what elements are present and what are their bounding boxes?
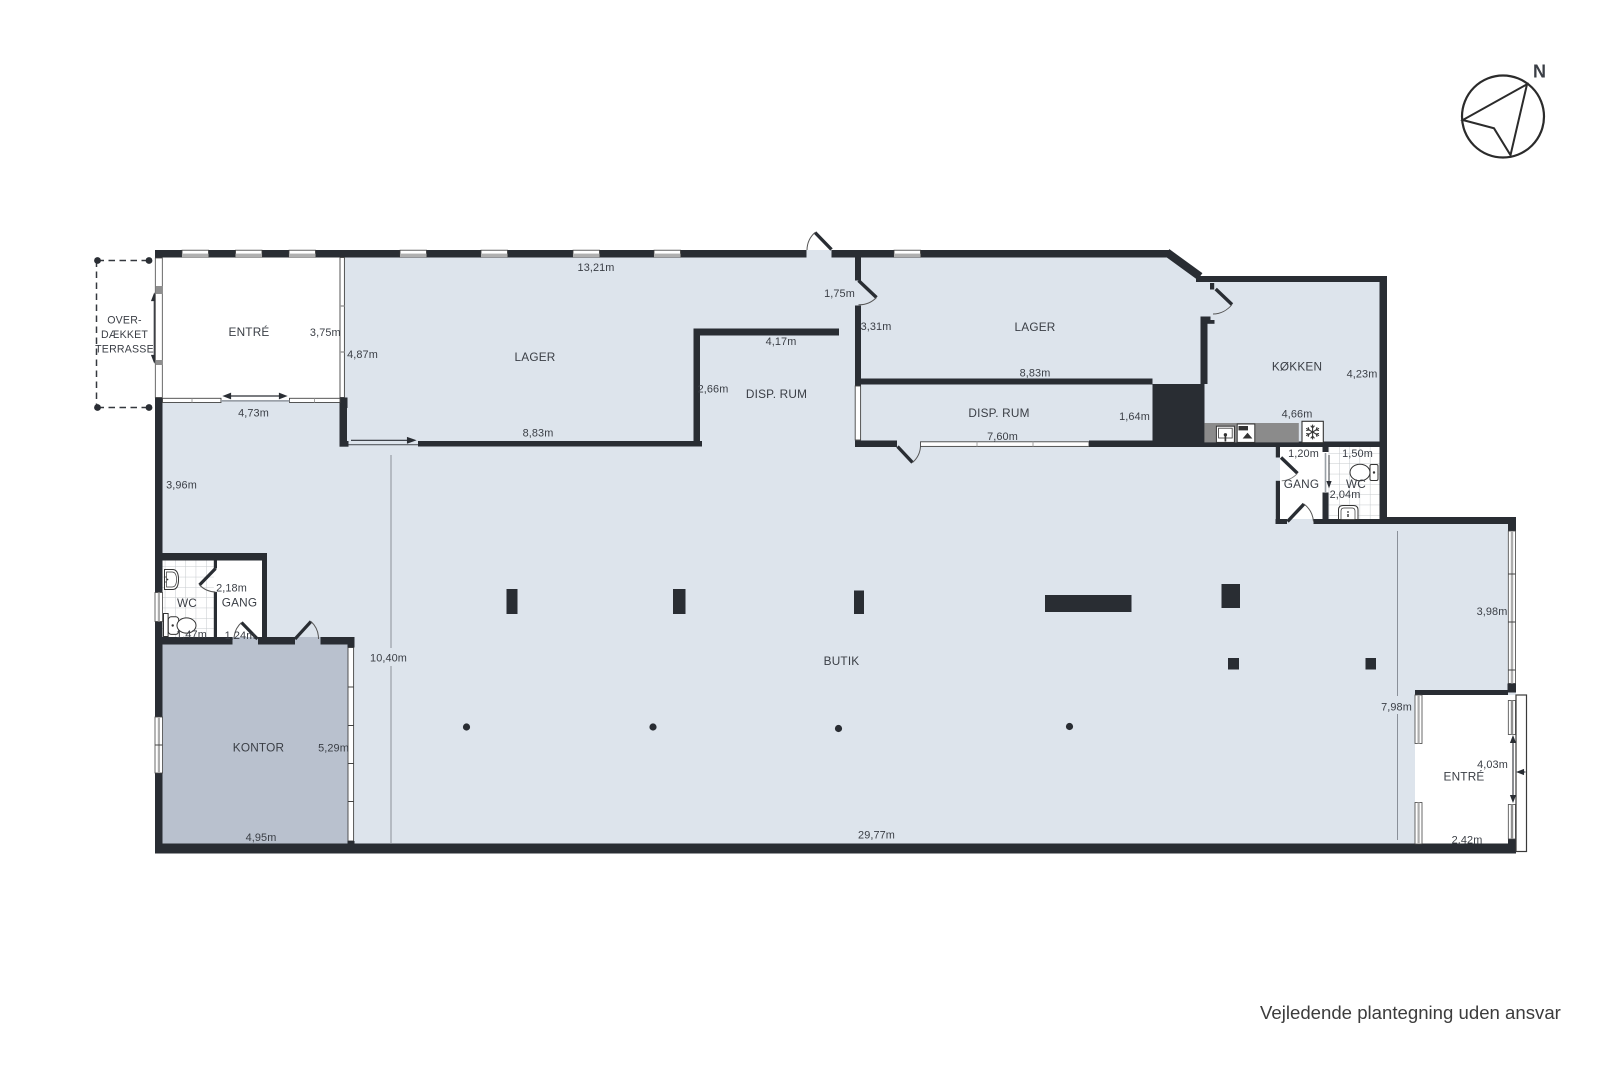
svg-text:10,40m: 10,40m [370,653,407,665]
svg-text:GANG: GANG [1284,477,1320,491]
svg-text:GANG: GANG [222,596,258,610]
svg-text:ENTRÉ: ENTRÉ [229,325,270,339]
svg-text:2,42m: 2,42m [1452,835,1483,847]
svg-text:4,73m: 4,73m [238,408,269,420]
svg-text:2,66m: 2,66m [698,384,729,396]
svg-text:29,77m: 29,77m [858,830,895,842]
svg-text:7,98m: 7,98m [1381,702,1412,714]
svg-text:1,20m: 1,20m [1288,448,1319,460]
svg-text:N: N [1533,62,1546,82]
svg-text:13,21m: 13,21m [578,262,615,274]
svg-text:ENTRÉ: ENTRÉ [1444,770,1485,784]
svg-text:TERRASSE: TERRASSE [95,344,154,356]
svg-text:KONTOR: KONTOR [233,741,284,755]
svg-text:4,23m: 4,23m [1347,369,1378,381]
svg-text:WC: WC [177,596,197,610]
svg-text:7,60m: 7,60m [987,431,1018,443]
svg-text:3,96m: 3,96m [166,480,197,492]
svg-text:4,95m: 4,95m [246,832,277,844]
svg-text:1,50m: 1,50m [1342,448,1373,460]
svg-text:3,31m: 3,31m [861,321,892,333]
svg-text:OVER-: OVER- [107,315,142,327]
svg-text:DISP. RUM: DISP. RUM [746,387,807,401]
svg-text:BUTIK: BUTIK [824,654,860,668]
svg-text:1,24m: 1,24m [225,630,256,642]
svg-text:4,87m: 4,87m [347,349,378,361]
svg-text:1,64m: 1,64m [1119,411,1150,423]
svg-text:8,83m: 8,83m [523,428,554,440]
svg-text:4,17m: 4,17m [766,336,797,348]
svg-text:LAGER: LAGER [515,350,556,364]
svg-text:DISP. RUM: DISP. RUM [968,406,1029,420]
svg-text:4,66m: 4,66m [1282,409,1313,421]
svg-text:LAGER: LAGER [1015,320,1056,334]
svg-text:2,04m: 2,04m [1330,489,1361,501]
svg-text:KØKKEN: KØKKEN [1272,360,1322,374]
svg-text:3,98m: 3,98m [1477,606,1508,618]
svg-text:2,18m: 2,18m [216,583,247,595]
svg-text:3,75m: 3,75m [310,327,341,339]
svg-text:DÆKKET: DÆKKET [101,329,148,341]
svg-text:4,03m: 4,03m [1477,759,1508,771]
svg-text:1,47m: 1,47m [176,629,207,641]
svg-text:5,29m: 5,29m [318,743,349,755]
svg-text:8,83m: 8,83m [1020,368,1051,380]
svg-text:1,75m: 1,75m [824,288,855,300]
